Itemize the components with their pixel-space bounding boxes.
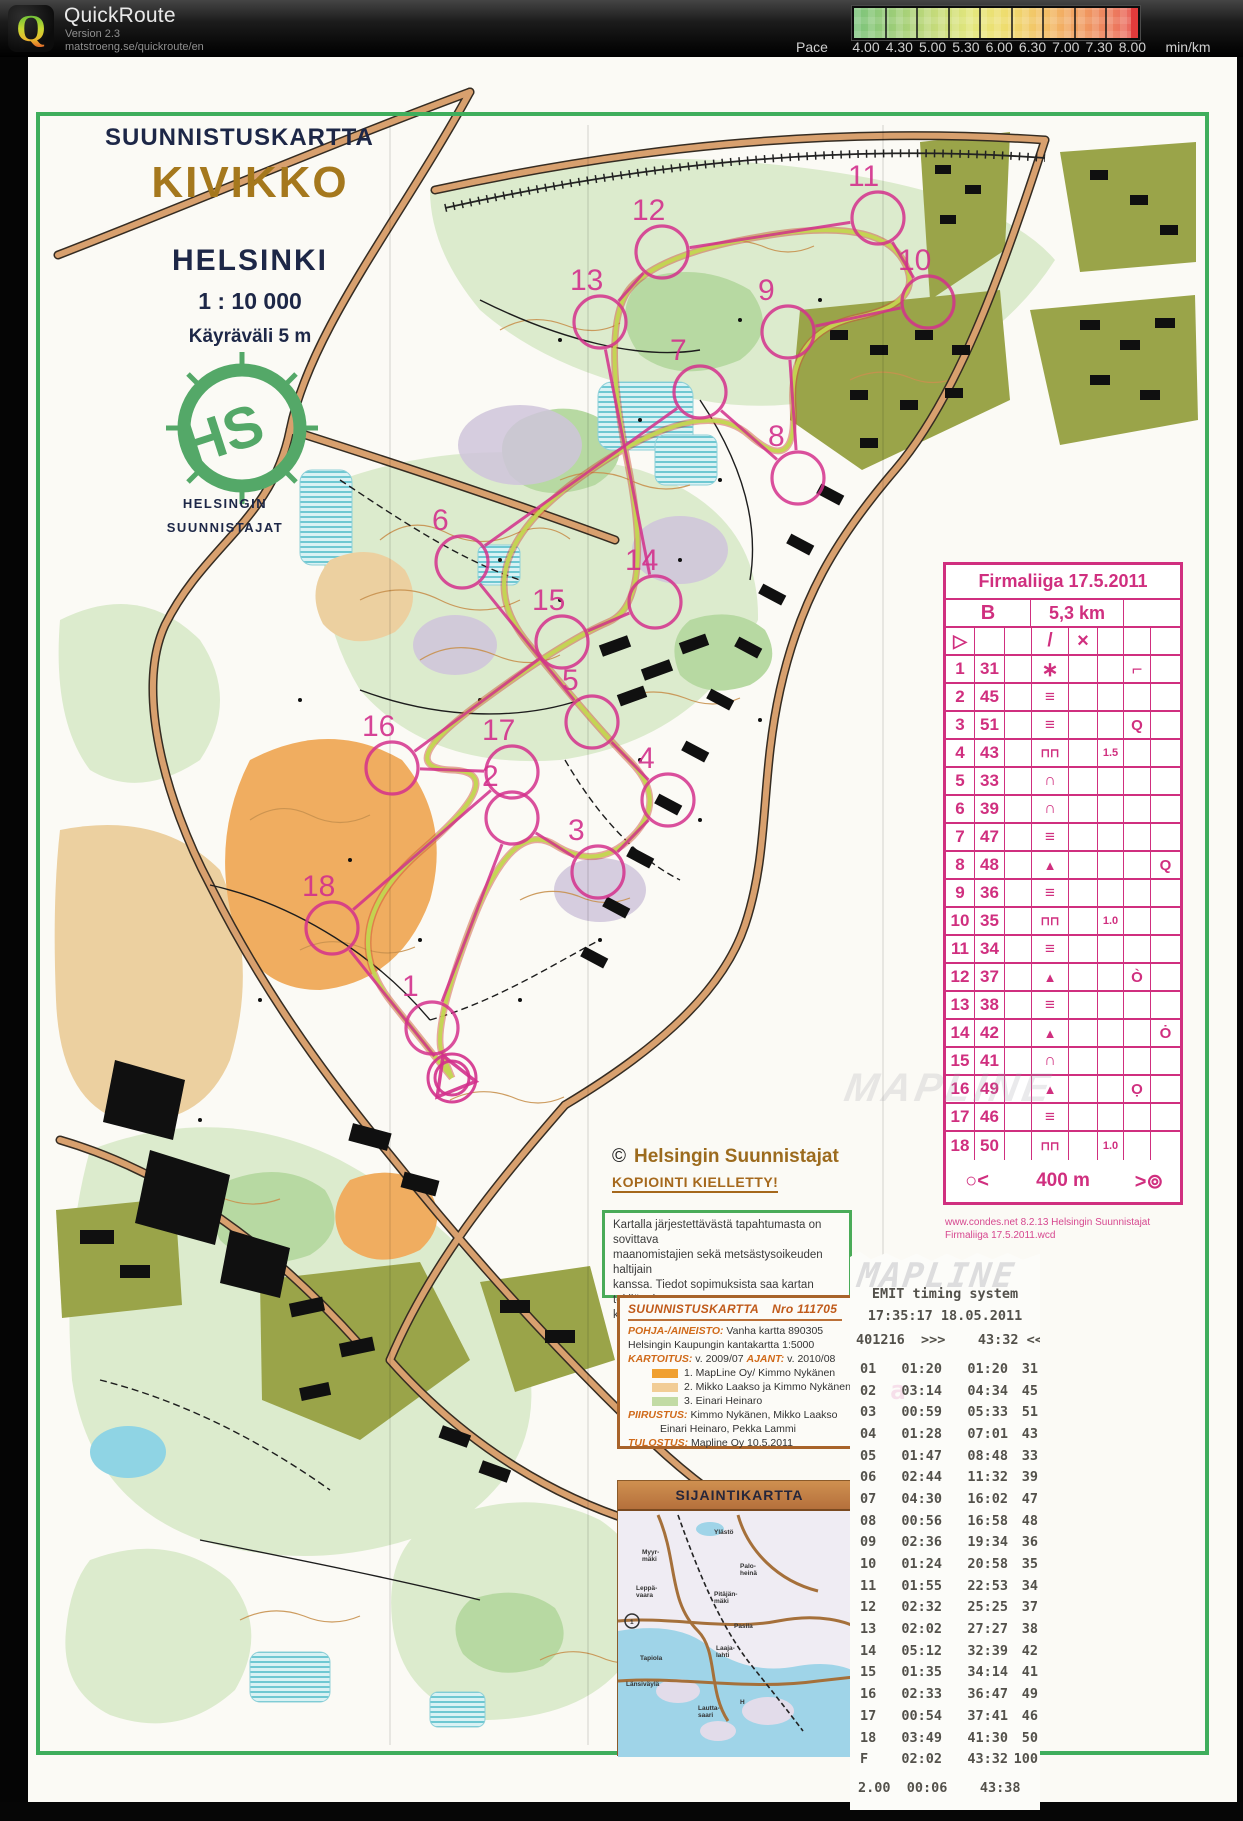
split-cell: 04:30 xyxy=(888,1491,942,1507)
split-cell: 08 xyxy=(860,1513,888,1529)
control-dimension: 1.5 xyxy=(1098,740,1124,766)
symbol-boulder-icon: ▲ xyxy=(1032,852,1069,878)
pace-tick xyxy=(1042,8,1044,38)
control-number-label: 1 xyxy=(402,970,419,1003)
control-number: 11 xyxy=(946,936,975,962)
split-cell: 04:34 xyxy=(942,1383,1008,1399)
symbol-circle-dot-bottom-icon: Ọ xyxy=(1124,1076,1151,1102)
copyright-line: ©Helsingin Suunnistajat xyxy=(612,1146,839,1168)
credits-label: AJANT: xyxy=(746,1353,784,1365)
inset-place-label: Palo- heinä xyxy=(740,1563,757,1577)
control-number-label: 16 xyxy=(362,710,395,743)
control-row: 443⊓⊓1.5 xyxy=(946,740,1180,768)
credits-text: Mapline Oy 10.5.2011 xyxy=(691,1437,793,1449)
split-cell: 02 xyxy=(860,1383,888,1399)
app-url: matstroeng.se/quickroute/en xyxy=(65,41,204,53)
credits-text: 1. MapLine Oy/ Kimmo Nykänen xyxy=(684,1367,835,1379)
credits-label: KARTOITUS: xyxy=(628,1353,692,1365)
split-cell: 36:47 xyxy=(942,1686,1008,1702)
split-time-row: 1302:0227:2738 xyxy=(860,1618,1038,1640)
control-row: 1237▲Ò xyxy=(946,964,1180,992)
credits-text: Helsingin Kaupungin kantakartta 1:5000 xyxy=(628,1339,814,1351)
credits-number: Nro 111705 xyxy=(772,1302,837,1316)
split-cell: 12 xyxy=(860,1599,888,1615)
control-row: 1442▲Ȯ xyxy=(946,1020,1180,1048)
split-time-row: 0101:2001:2031 xyxy=(860,1358,1038,1380)
control-code: 45 xyxy=(975,684,1005,710)
control-number: 4 xyxy=(946,740,975,766)
map-title: KIVIKKO xyxy=(125,158,375,208)
control-number-label: 11 xyxy=(848,160,879,193)
split-cell: 02:32 xyxy=(888,1599,942,1615)
split-cell: 01:20 xyxy=(888,1361,942,1377)
split-cell: 17 xyxy=(860,1708,888,1724)
split-cell: 46 xyxy=(1008,1708,1038,1724)
symbol-marsh-icon: ≡ xyxy=(1032,992,1069,1018)
symbol-slash-icon: / xyxy=(1032,628,1069,654)
pace-tick-label: 7.00 xyxy=(1052,39,1079,55)
control-number: 2 xyxy=(946,684,975,710)
svg-text:Q: Q xyxy=(16,8,46,50)
split-time-row: F02:0243:32100 xyxy=(860,1748,1038,1770)
course-header-row: B 5,3 km xyxy=(946,600,1180,628)
club-logo: HS xyxy=(166,352,318,504)
pace-tick xyxy=(979,8,981,38)
control-code: 35 xyxy=(975,908,1005,934)
split-cell: 41 xyxy=(1008,1664,1038,1680)
control-number: 18 xyxy=(946,1132,975,1160)
split-time-row: 0902:3619:3436 xyxy=(860,1532,1038,1554)
map-credits-box: SUUNNISTUSKARTTA Nro 111705 POHJA-/AINEI… xyxy=(617,1295,853,1449)
control-code: 37 xyxy=(975,964,1005,990)
control-number: 7 xyxy=(946,824,975,850)
split-cell: 02:02 xyxy=(888,1621,942,1637)
control-number-label: 7 xyxy=(670,334,687,367)
split-cell: 34:14 xyxy=(942,1664,1008,1680)
control-number-label: 4 xyxy=(638,742,655,775)
split-cell: 10 xyxy=(860,1556,888,1572)
pace-tick-label: 7.30 xyxy=(1085,39,1112,55)
permission-text-line: maanomistajien sekä metsästysoikeuden ha… xyxy=(613,1248,841,1278)
pond xyxy=(90,1426,166,1478)
credits-row: 3. Einari Heinaro xyxy=(628,1394,842,1408)
symbol-circle-tail-icon: Q xyxy=(1124,712,1151,738)
credits-text: Kimmo Nykänen, Mikko Laakso xyxy=(690,1409,837,1421)
pace-tick xyxy=(1011,8,1013,38)
split-cell: 00:54 xyxy=(888,1708,942,1724)
control-row: 1338≡ xyxy=(946,992,1180,1020)
pace-tick-label: 6.00 xyxy=(986,39,1013,55)
pace-unit: min/km xyxy=(1165,39,1210,55)
legend-color-swatch xyxy=(652,1383,678,1392)
control-number-label: 6 xyxy=(432,504,449,537)
split-cell: 02:44 xyxy=(888,1469,942,1485)
split-cell: 14 xyxy=(860,1643,888,1659)
control-number-label: 9 xyxy=(758,274,775,307)
copyright-owner: Helsingin Suunnistajat xyxy=(634,1146,839,1167)
legend-color-swatch xyxy=(652,1397,678,1406)
pace-color-scale xyxy=(852,6,1140,40)
control-number-label: 8 xyxy=(768,420,785,453)
split-cell: 09 xyxy=(860,1534,888,1550)
split-time-row: 0300:5905:3351 xyxy=(860,1401,1038,1423)
control-number-label: 14 xyxy=(625,544,658,577)
split-cell: 03:14 xyxy=(888,1383,942,1399)
split-cell: 01:55 xyxy=(888,1578,942,1594)
split-cell: 37 xyxy=(1008,1599,1038,1615)
control-number: 13 xyxy=(946,992,975,1018)
inset-place-label: 1 xyxy=(630,1619,634,1626)
quickroute-logo-icon: Q xyxy=(8,5,54,52)
split-cell: 02:36 xyxy=(888,1534,942,1550)
split-cell: 41:30 xyxy=(942,1730,1008,1746)
split-cell: 27:27 xyxy=(942,1621,1008,1637)
split-cell: 31 xyxy=(1008,1361,1038,1377)
symbol-stony-ground-icon: ∗ xyxy=(1032,656,1069,682)
split-cell: 01 xyxy=(860,1361,888,1377)
split-cell: 33 xyxy=(1008,1448,1038,1464)
control-row: 936≡ xyxy=(946,880,1180,908)
pace-tick-label: 4.30 xyxy=(886,39,913,55)
split-cell: 49 xyxy=(1008,1686,1038,1702)
pace-tick-label: 8.00 xyxy=(1119,39,1146,55)
inset-place-label: Länsiväylä xyxy=(626,1681,659,1688)
credits-label: TULOSTUS: xyxy=(628,1437,688,1449)
receipt-card-line: 401216 >>> 43:32 <<< xyxy=(856,1332,1040,1348)
split-cell: 39 xyxy=(1008,1469,1038,1485)
control-code: 39 xyxy=(975,796,1005,822)
split-cell: 05 xyxy=(860,1448,888,1464)
credits-row: Helsingin Kaupungin kantakartta 1:5000 xyxy=(628,1338,842,1352)
map-contour-interval: Käyräväli 5 m xyxy=(125,326,375,348)
pace-label: Pace xyxy=(796,39,828,55)
app-header: Q QuickRoute Version 2.3 matstroeng.se/q… xyxy=(0,0,1243,57)
symbol-marsh-icon: ≡ xyxy=(1032,936,1069,962)
credits-row: 1. MapLine Oy/ Kimmo Nykänen xyxy=(628,1366,842,1380)
control-code: 42 xyxy=(975,1020,1005,1046)
split-time-row: 0800:5616:5848 xyxy=(860,1510,1038,1532)
copy-prohibited-notice: KOPIOINTI KIELLETTY! xyxy=(612,1174,778,1193)
pace-tick xyxy=(916,8,918,38)
control-number: 6 xyxy=(946,796,975,822)
symbol-circle-dot-top-icon: Ȯ xyxy=(1151,1020,1180,1046)
finish-distance: 400 m xyxy=(1008,1170,1118,1192)
receipt-total-line: 2.00 00:06 43:38 xyxy=(858,1780,1040,1796)
symbol-boulder-icon: ▲ xyxy=(1032,964,1069,990)
split-cell: 38 xyxy=(1008,1621,1038,1637)
split-time-row: 0602:4411:3239 xyxy=(860,1466,1038,1488)
split-cell: 37:41 xyxy=(942,1708,1008,1724)
legend-color-swatch xyxy=(652,1369,678,1378)
split-cell: 02:02 xyxy=(888,1751,942,1767)
control-row: 848▲Q xyxy=(946,852,1180,880)
symbol-marsh-icon: ≡ xyxy=(1032,824,1069,850)
control-dimension: 1.0 xyxy=(1098,1132,1124,1160)
split-cell: 11 xyxy=(860,1578,888,1594)
symbol-wall-icon: ⊓⊓ xyxy=(1032,740,1069,766)
control-row: 1134≡ xyxy=(946,936,1180,964)
split-time-row: 1101:5522:5334 xyxy=(860,1575,1038,1597)
location-map-inset: SIJAINTIKARTTA YlästöMyyr- mäkiPalo- hei… xyxy=(617,1480,862,1756)
split-time-row: 0203:1404:3445 xyxy=(860,1380,1038,1402)
control-row: ▷/× xyxy=(946,628,1180,656)
split-cell: 00:59 xyxy=(888,1404,942,1420)
quickroute-window: HS 123456789101112131415161718 Q QuickRo… xyxy=(0,0,1243,1821)
split-cell: 07:01 xyxy=(942,1426,1008,1442)
symbol-circle-dot-icon: Q xyxy=(1151,852,1180,878)
control-code: 34 xyxy=(975,936,1005,962)
control-number: 8 xyxy=(946,852,975,878)
map-city: HELSINKI xyxy=(125,244,375,278)
control-number-label: 18 xyxy=(302,870,335,903)
credits-row: TULOSTUS: Mapline Oy 10.5.2011 xyxy=(628,1436,842,1450)
course-event-title: Firmaliiga 17.5.2011 xyxy=(946,565,1180,600)
split-cell: 07 xyxy=(860,1491,888,1507)
symbol-wall-icon: ⊓⊓ xyxy=(1032,1132,1069,1160)
control-number-label: 17 xyxy=(482,714,515,747)
map-scale: 1 : 10 000 xyxy=(125,288,375,315)
control-number-label: 3 xyxy=(568,814,585,847)
symbol-marsh-icon: ≡ xyxy=(1032,880,1069,906)
pace-tick-label: 4.00 xyxy=(852,39,879,55)
credits-text: Vanha kartta 890305 xyxy=(726,1325,823,1337)
split-cell: 01:47 xyxy=(888,1448,942,1464)
receipt-title: EMIT timing system xyxy=(850,1286,1040,1302)
inset-place-label: Ylästö xyxy=(714,1529,734,1536)
control-code: 38 xyxy=(975,992,1005,1018)
course-length: 5,3 km xyxy=(1031,600,1124,626)
split-cell: 25:25 xyxy=(942,1599,1008,1615)
control-number-label: 12 xyxy=(632,194,665,227)
pace-scale-end-cap xyxy=(1131,8,1138,38)
credits-text: 2. Mikko Laakso ja Kimmo Nykänen xyxy=(684,1381,851,1393)
split-cell: 48 xyxy=(1008,1513,1038,1529)
split-time-row: 1700:5437:4146 xyxy=(860,1705,1038,1727)
split-time-row: 1202:3225:2537 xyxy=(860,1597,1038,1619)
control-number-label: 15 xyxy=(532,584,565,617)
club-name-line2: SUUNNISTAJAT xyxy=(125,520,325,535)
control-code: 48 xyxy=(975,852,1005,878)
condes-credit-line1: www.condes.net 8.2.13 Helsingin Suunnist… xyxy=(945,1216,1205,1229)
split-cell: 01:35 xyxy=(888,1664,942,1680)
pace-tick xyxy=(1074,8,1076,38)
split-cell: 20:58 xyxy=(942,1556,1008,1572)
control-number-label: 10 xyxy=(898,244,931,277)
control-code: 43 xyxy=(975,740,1005,766)
scan-edge-left xyxy=(0,57,28,1821)
split-cell: F xyxy=(860,1751,888,1767)
split-cell: 36 xyxy=(1008,1534,1038,1550)
control-number: 12 xyxy=(946,964,975,990)
split-time-row: 1602:3336:4749 xyxy=(860,1683,1038,1705)
split-cell: 01:28 xyxy=(888,1426,942,1442)
scan-edge-bottom xyxy=(0,1802,1243,1821)
inset-place-label: Myyr- mäki xyxy=(642,1549,659,1563)
scan-edge-right xyxy=(1237,57,1243,1821)
permission-text-line: Kartalla järjestettävästä tapahtumasta o… xyxy=(613,1218,841,1248)
credits-row: 2. Mikko Laakso ja Kimmo Nykänen xyxy=(628,1380,842,1394)
symbol-start-icon: ▷ xyxy=(946,628,975,654)
split-cell: 02:33 xyxy=(888,1686,942,1702)
pace-tick xyxy=(1105,8,1107,38)
split-cell: 03:49 xyxy=(888,1730,942,1746)
split-cell: 43:32 xyxy=(942,1751,1008,1767)
inset-place-label: Tapiola xyxy=(640,1655,662,1662)
control-number: 3 xyxy=(946,712,975,738)
control-row: 351≡Q xyxy=(946,712,1180,740)
split-cell: 16 xyxy=(860,1686,888,1702)
control-number: 1 xyxy=(946,656,975,682)
split-cell: 19:34 xyxy=(942,1534,1008,1550)
emit-split-receipt: MAPLINE a EMIT timing system 17:35:17 18… xyxy=(850,1248,1040,1810)
split-cell: 43 xyxy=(1008,1426,1038,1442)
symbol-wall-icon: ⊓⊓ xyxy=(1032,908,1069,934)
inset-place-label: H xyxy=(740,1699,745,1706)
symbol-boulder-icon: ▲ xyxy=(1032,1020,1069,1046)
receipt-split-rows: 0101:2001:20310203:1404:34450300:5905:33… xyxy=(860,1358,1038,1770)
credits-text: v. 2009/07 xyxy=(695,1353,743,1365)
split-cell: 18 xyxy=(860,1730,888,1746)
split-cell: 34 xyxy=(1008,1578,1038,1594)
split-cell: 42 xyxy=(1008,1643,1038,1659)
split-cell: 01:20 xyxy=(942,1361,1008,1377)
taped-route-start-icon: ○< xyxy=(946,1170,1008,1193)
split-cell: 01:24 xyxy=(888,1556,942,1572)
credits-text: 3. Einari Heinaro xyxy=(684,1395,762,1407)
split-cell: 22:53 xyxy=(942,1578,1008,1594)
permission-notice-box: Kartalla järjestettävästä tapahtumasta o… xyxy=(602,1210,852,1298)
split-time-row: 1803:4941:3050 xyxy=(860,1727,1038,1749)
course-name: B xyxy=(946,600,1031,626)
inset-place-label: Lautta- saari xyxy=(698,1705,720,1719)
control-code: 50 xyxy=(975,1132,1005,1160)
pace-tick xyxy=(948,8,950,38)
control-code: 47 xyxy=(975,824,1005,850)
credits-row: KARTOITUS: v. 2009/07 AJANT: v. 2010/08 xyxy=(628,1352,842,1366)
symbol-marsh-icon: ≡ xyxy=(1032,684,1069,710)
control-row: 533∩ xyxy=(946,768,1180,796)
split-cell: 100 xyxy=(1008,1751,1038,1767)
control-number: 14 xyxy=(946,1020,975,1046)
credits-row: POHJA-/AINEISTO: Vanha kartta 890305 xyxy=(628,1324,842,1338)
receipt-datetime: 17:35:17 18.05.2011 xyxy=(850,1308,1040,1324)
symbol-marsh-icon: ≡ xyxy=(1032,712,1069,738)
condes-credit: www.condes.net 8.2.13 Helsingin Suunnist… xyxy=(945,1216,1205,1242)
mapline-watermark: MAPLINE xyxy=(841,1066,1057,1111)
split-cell: 04 xyxy=(860,1426,888,1442)
condes-credit-line2: Firmaliiga 17.5.2011.wcd xyxy=(945,1229,1205,1242)
symbol-knoll-icon: ∩ xyxy=(1032,796,1069,822)
control-number: 10 xyxy=(946,908,975,934)
inset-place-label: Leppä- vaara xyxy=(636,1585,657,1599)
split-cell: 45 xyxy=(1008,1383,1038,1399)
control-code: 33 xyxy=(975,768,1005,794)
control-code: 36 xyxy=(975,880,1005,906)
symbol-flag-icon: ⌐ xyxy=(1124,656,1151,682)
copyright-icon: © xyxy=(612,1146,626,1167)
club-name-line1: HELSINGIN xyxy=(125,496,325,511)
card-footer-row: ○< 400 m >⊚ xyxy=(946,1160,1180,1202)
credits-row: Einari Heinaro, Pekka Lammi xyxy=(628,1422,842,1436)
pace-tick xyxy=(885,8,887,38)
split-cell: 11:32 xyxy=(942,1469,1008,1485)
split-cell: 32:39 xyxy=(942,1643,1008,1659)
inset-title: SIJAINTIKARTTA xyxy=(618,1481,861,1511)
credits-label: POHJA-/AINEISTO: xyxy=(628,1325,723,1337)
symbol-knoll-icon: ∩ xyxy=(1032,768,1069,794)
taped-route-finish-icon: >⊚ xyxy=(1118,1169,1180,1194)
credits-row: PIIRUSTUS: Kimmo Nykänen, Mikko Laakso xyxy=(628,1408,842,1422)
symbol-circle-tick-icon: Ò xyxy=(1124,964,1151,990)
control-row: 747≡ xyxy=(946,824,1180,852)
inset-place-label: Laaja- lahti xyxy=(716,1645,735,1659)
control-row: 131∗⌐ xyxy=(946,656,1180,684)
control-code: 51 xyxy=(975,712,1005,738)
split-cell: 15 xyxy=(860,1664,888,1680)
control-row: 1850⊓⊓1.0 xyxy=(946,1132,1180,1160)
split-cell: 13 xyxy=(860,1621,888,1637)
split-time-row: 1501:3534:1441 xyxy=(860,1662,1038,1684)
split-cell: 05:12 xyxy=(888,1643,942,1659)
split-cell: 51 xyxy=(1008,1404,1038,1420)
inset-place-label: Pitäjän- mäki xyxy=(714,1591,737,1605)
control-number: 9 xyxy=(946,880,975,906)
split-cell: 16:58 xyxy=(942,1513,1008,1529)
split-time-row: 0704:3016:0247 xyxy=(860,1488,1038,1510)
inset-place-label: Pasila xyxy=(734,1623,753,1630)
map-header-text: SUUNNISTUSKARTTA xyxy=(105,124,375,152)
control-row: 639∩ xyxy=(946,796,1180,824)
course-leg xyxy=(420,769,484,771)
symbol-cross-icon: × xyxy=(1069,628,1098,654)
credits-title: SUUNNISTUSKARTTA xyxy=(628,1302,759,1316)
control-code: 31 xyxy=(975,656,1005,682)
split-time-row: 1001:2420:5835 xyxy=(860,1553,1038,1575)
pace-tick-label: 5.00 xyxy=(919,39,946,55)
pace-tick-label: 6.30 xyxy=(1019,39,1046,55)
split-cell: 06 xyxy=(860,1469,888,1485)
app-title: QuickRoute xyxy=(64,4,176,28)
control-dimension: 1.0 xyxy=(1098,908,1124,934)
pace-tick-label: 5.30 xyxy=(952,39,979,55)
split-time-row: 0401:2807:0143 xyxy=(860,1423,1038,1445)
split-time-row: 0501:4708:4833 xyxy=(860,1445,1038,1467)
control-number: 5 xyxy=(946,768,975,794)
sand-patch xyxy=(315,552,413,641)
split-cell: 35 xyxy=(1008,1556,1038,1572)
split-cell: 16:02 xyxy=(942,1491,1008,1507)
split-time-row: 1405:1232:3942 xyxy=(860,1640,1038,1662)
app-version: Version 2.3 xyxy=(65,28,120,40)
control-row: 245≡ xyxy=(946,684,1180,712)
split-cell: 00:56 xyxy=(888,1513,942,1529)
split-cell: 47 xyxy=(1008,1491,1038,1507)
control-row: 1035⊓⊓1.0 xyxy=(946,908,1180,936)
credits-text: v. 2010/08 xyxy=(787,1353,835,1365)
split-cell: 50 xyxy=(1008,1730,1038,1746)
split-cell: 03 xyxy=(860,1404,888,1420)
split-cell: 08:48 xyxy=(942,1448,1008,1464)
control-number-label: 13 xyxy=(570,264,603,297)
credits-label: PIIRUSTUS: xyxy=(628,1409,688,1421)
credits-text: Einari Heinaro, Pekka Lammi xyxy=(660,1423,796,1435)
split-cell: 05:33 xyxy=(942,1404,1008,1420)
